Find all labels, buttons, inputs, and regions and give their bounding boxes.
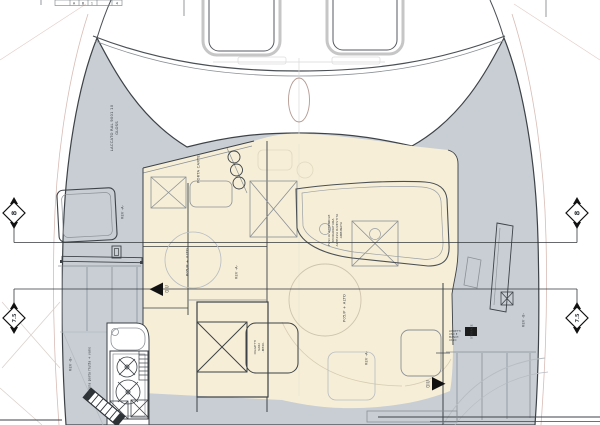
deck-plan-drawing: 8 8 7.5 7.5 A B 1 4 LACCATO RAL 9001 10 … [0,0,600,425]
mensola-note: mensola porta frutta + vano [88,347,92,398]
rev-a-label-1: REV -A- [121,204,125,219]
titleblock-cell: 1 [91,1,93,5]
pos-alto-label-2: P05/P + ALTO [342,294,347,322]
titleblock-cell: 4 [116,1,118,5]
giu-label-left: GIU [165,285,170,293]
svg-text:-MEDI-: -MEDI- [261,341,265,352]
giu-label-right: GIU [426,380,431,388]
rev-a-label-3: REV -A- [365,350,369,365]
svg-text:VANO: VANO [449,339,457,342]
svg-text:ABBINATA: ABBINATA [339,221,343,238]
rev-b-label-2: REV -B- [522,312,526,327]
rev-a-label-2: REV -A- [235,264,239,279]
laccato-note-line2: GLOSS [114,121,119,135]
galley-highlight-region [143,134,458,409]
section-number: 8 [574,210,582,215]
section-number: 7.5 [12,313,18,322]
porta-carte-label: PORTA CARTE [196,155,201,183]
section-number: 8 [11,210,19,215]
pos-alto-label-1: P05/P + ALTO [185,248,190,276]
rev-b-label-1: REV -B- [69,356,73,371]
section-number: 7.5 [575,313,581,322]
storage-label: STORAGE [470,324,474,339]
cad-drawing-canvas: 8 8 7.5 7.5 A B 1 4 LACCATO RAL 9001 10 … [0,0,600,425]
